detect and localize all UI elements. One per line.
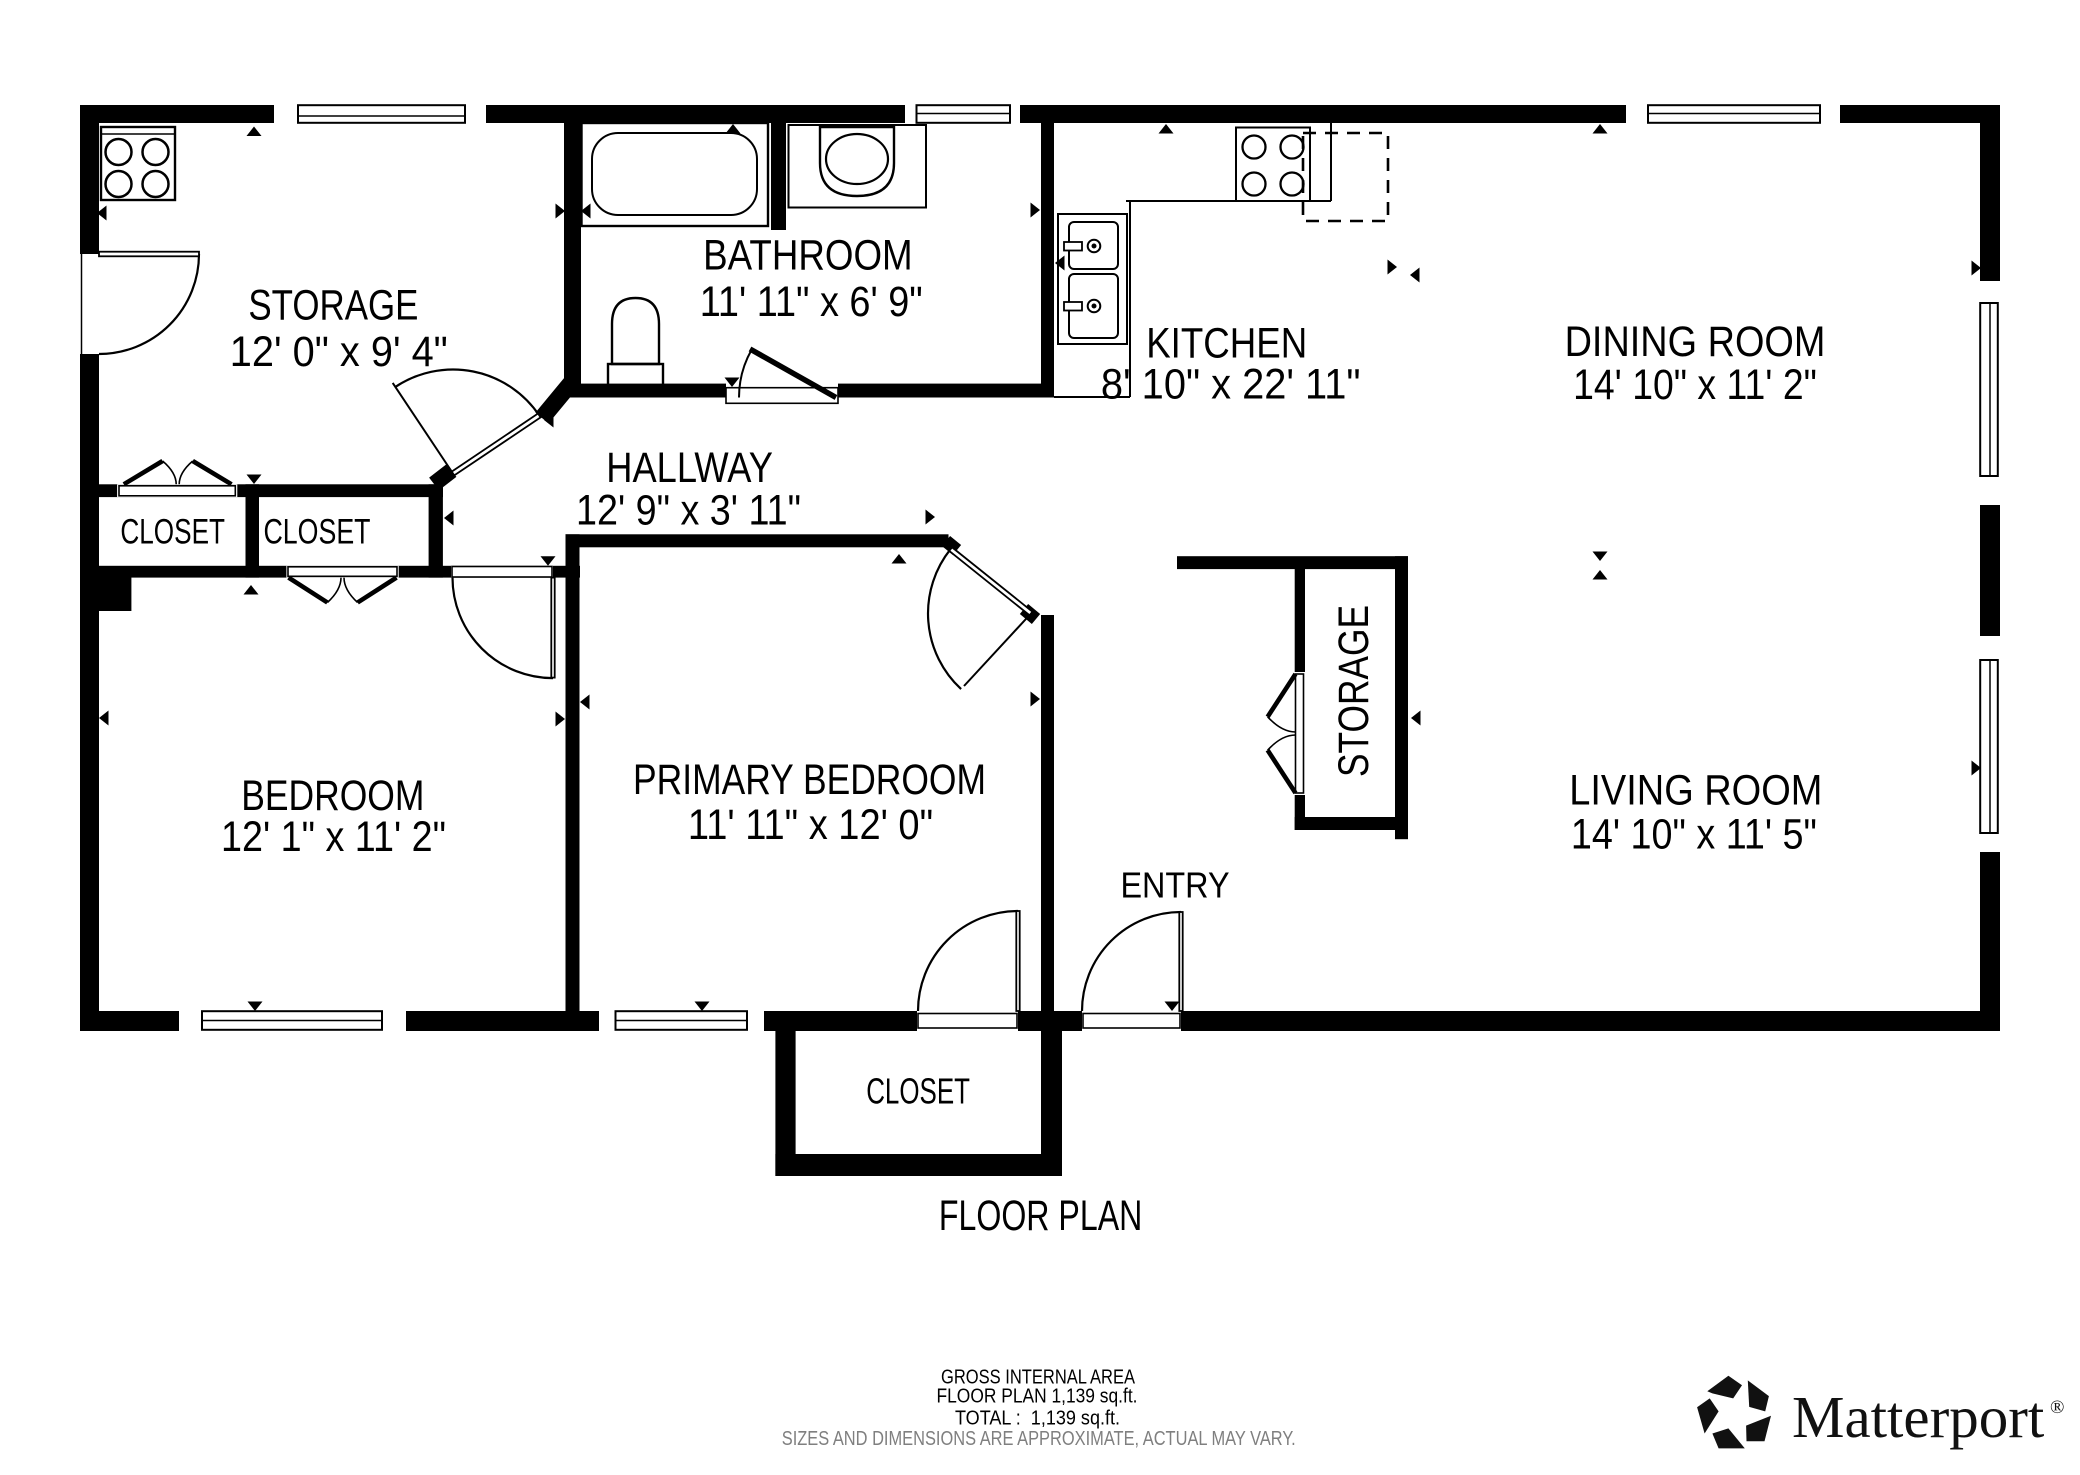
svg-text:SIZES AND DIMENSIONS ARE APPRO: SIZES AND DIMENSIONS ARE APPROXIMATE, AC…: [782, 1428, 1296, 1450]
svg-text:CLOSET: CLOSET: [120, 511, 225, 551]
svg-text:®: ®: [2050, 1397, 2064, 1418]
svg-text:HALLWAY: HALLWAY: [606, 444, 773, 492]
svg-text:8' 10" x 22' 11": 8' 10" x 22' 11": [1101, 361, 1361, 409]
svg-text:BATHROOM: BATHROOM: [703, 232, 913, 280]
svg-text:14' 10" x 11' 2": 14' 10" x 11' 2": [1573, 361, 1817, 409]
svg-text:STORAGE: STORAGE: [248, 282, 418, 330]
svg-text:14' 10" x 11' 5": 14' 10" x 11' 5": [1571, 811, 1817, 859]
svg-text:ENTRY: ENTRY: [1120, 865, 1229, 906]
svg-text:TOTAL : 1,139 sq.ft.: TOTAL : 1,139 sq.ft.: [955, 1408, 1120, 1430]
svg-text:12' 0" x 9' 4": 12' 0" x 9' 4": [230, 328, 448, 376]
svg-text:11' 11" x 12' 0": 11' 11" x 12' 0": [688, 801, 933, 849]
svg-text:Matterport: Matterport: [1792, 1384, 2045, 1450]
svg-text:DINING ROOM: DINING ROOM: [1565, 318, 1826, 366]
svg-text:PRIMARY BEDROOM: PRIMARY BEDROOM: [633, 756, 986, 804]
svg-text:12' 1" x 11' 2": 12' 1" x 11' 2": [221, 813, 446, 861]
svg-text:LIVING ROOM: LIVING ROOM: [1569, 767, 1822, 815]
svg-text:CLOSET: CLOSET: [866, 1070, 970, 1111]
svg-text:12' 9" x 3' 11": 12' 9" x 3' 11": [576, 486, 801, 534]
svg-text:STORAGE: STORAGE: [1330, 605, 1378, 777]
svg-text:CLOSET: CLOSET: [264, 511, 371, 551]
svg-text:11' 11" x 6' 9": 11' 11" x 6' 9": [700, 278, 923, 326]
svg-text:FLOOR PLAN 1,139 sq.ft.: FLOOR PLAN 1,139 sq.ft.: [937, 1386, 1138, 1408]
svg-text:FLOOR PLAN: FLOOR PLAN: [939, 1192, 1142, 1240]
